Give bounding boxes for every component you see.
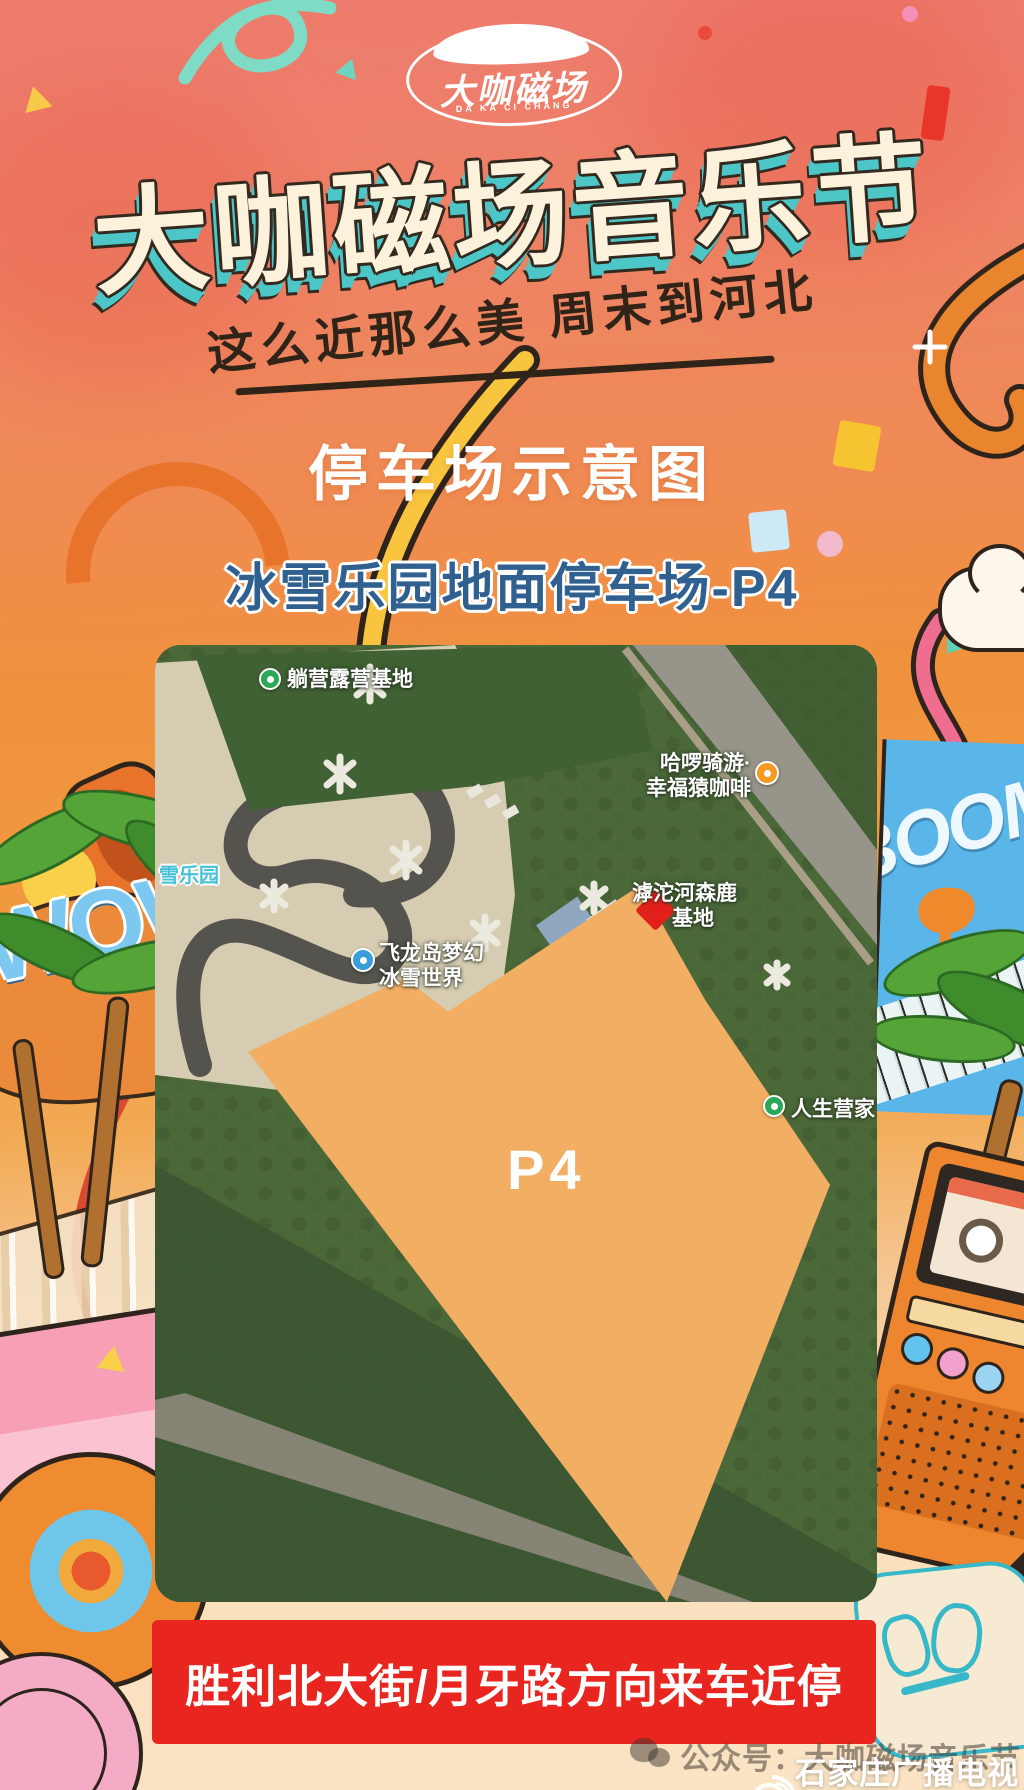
map-label-deer-line2: 基地	[672, 906, 737, 931]
broadcaster-watermark-text: 石家庄广播电视台	[795, 1748, 1024, 1790]
boom-graffiti-text: BOOM	[870, 757, 1024, 902]
festival-parking-poster: WOW ♪ BOOM	[0, 0, 1024, 1790]
radio-triangle	[97, 1344, 128, 1372]
decor-dot-pink	[902, 6, 918, 22]
cassette-reel-icon	[955, 1214, 1008, 1267]
map-label-coffee: 哈啰骑游· 幸福猿咖啡	[583, 751, 751, 801]
decor-dot-red	[698, 26, 712, 40]
parking-lot-title: 冰雪乐园地面停车场-P4	[0, 546, 1024, 621]
direction-banner: 胜利北大街/月牙路方向来车近停	[152, 1620, 876, 1744]
map-label-snowpark: 雪乐园	[159, 859, 219, 888]
map-pin-life-icon	[763, 1095, 785, 1117]
map-pin-camp-icon	[259, 668, 281, 690]
boombox-knob	[934, 1344, 972, 1382]
cassette-window	[914, 1162, 1024, 1321]
graffiti-stroke	[928, 1601, 985, 1676]
map-label-ice-line1: 飞龙岛梦幻	[379, 941, 484, 966]
map-label-coffee-line2: 幸福猿咖啡	[583, 776, 751, 801]
map-label-ice: 飞龙岛梦幻 冰雪世界	[379, 941, 484, 991]
map-label-deer-line1: 滹沱河森鹿	[632, 881, 737, 906]
satellite-map: P4 躺营露营基地 哈啰骑游· 幸福猿咖啡 滹沱河森鹿 基地 飞龙岛梦幻 冰雪世…	[155, 645, 877, 1602]
map-label-deer: 滹沱河森鹿 基地	[632, 881, 737, 931]
cassette-tape-icon	[929, 1176, 1024, 1306]
boombox-knob	[898, 1330, 936, 1368]
wechat-icon	[630, 1738, 674, 1774]
map-label-camp: 躺营露营基地	[287, 667, 413, 692]
parking-area-p4-label: P4	[507, 1137, 586, 1202]
map-pin-coffee-icon	[755, 761, 779, 785]
map-label-ice-line2: 冰雪世界	[379, 966, 484, 991]
graffiti-stroke	[876, 1610, 935, 1682]
section-title: 停车场示意图	[0, 426, 1024, 513]
music-note-icon: ♪	[0, 1353, 8, 1412]
broadcaster-watermark: 石家庄广播电视台	[750, 1748, 1024, 1790]
paint-splash-icon	[918, 887, 976, 935]
weibo-icon	[750, 1773, 791, 1790]
direction-banner-text: 胜利北大街/月牙路方向来车近停	[185, 1650, 843, 1715]
boombox-speaker	[863, 1382, 1024, 1544]
map-label-coffee-line1: 哈啰骑游·	[583, 751, 751, 776]
boombox-knob	[969, 1359, 1007, 1397]
map-pin-ice-icon	[351, 948, 375, 972]
map-label-life: 人生营家	[791, 1097, 875, 1122]
festival-logo: 大咖磁场 DA KA CI CHANG	[396, 18, 629, 130]
